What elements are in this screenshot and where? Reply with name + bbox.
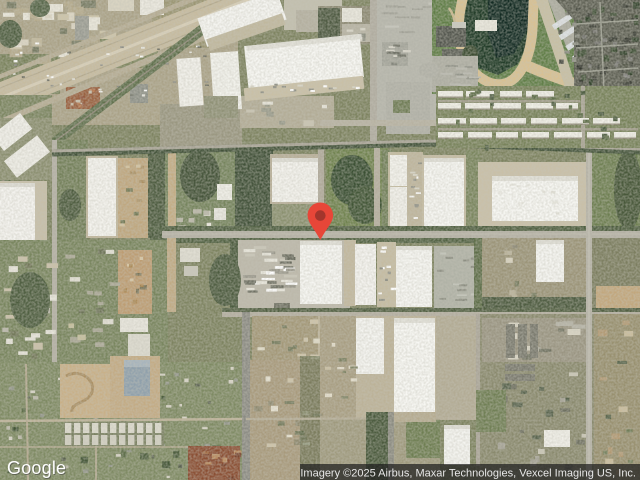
svg-text:Google: Google bbox=[7, 458, 66, 478]
svg-text:Imagery ©2025 Airbus, Maxar Te: Imagery ©2025 Airbus, Maxar Technologies… bbox=[300, 468, 636, 480]
